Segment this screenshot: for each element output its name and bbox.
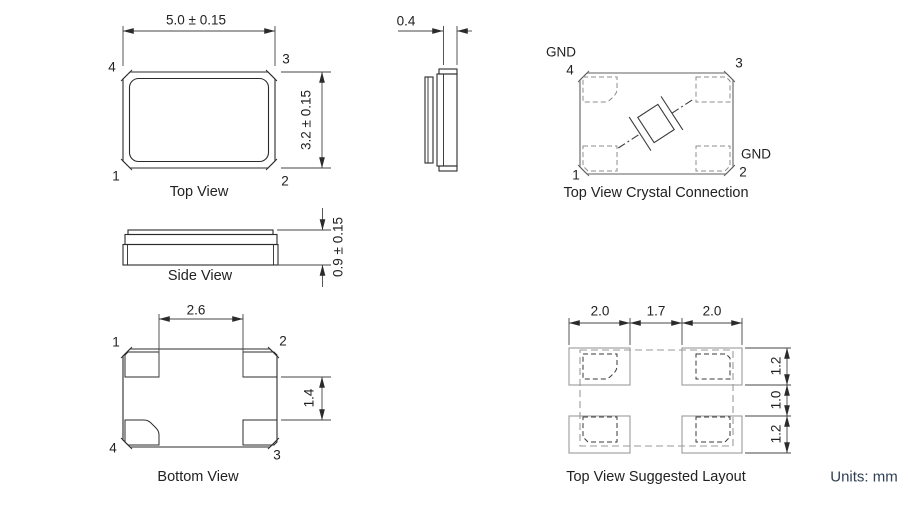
top-view-pin3-label: 3 [282,52,290,66]
side-view-height-dim-label: 0.9 ± 0.15 [331,217,345,277]
drawing-canvas: 5.0 ± 0.15 3.2 ± 0.15 4 3 1 2 Top View 0… [0,0,908,528]
crystal-pin3-label: 3 [735,56,743,70]
crystal-pin2-label: 2 [739,165,747,179]
top-view-width-dim-label: 5.0 ± 0.15 [166,13,226,27]
bottom-view-pin3-label: 3 [273,448,281,462]
suggested-layout-drawing [569,318,791,453]
side-view-caption: Side View [168,269,232,284]
top-view-pin4-label: 4 [108,60,116,74]
crystal-connection-caption: Top View Crystal Connection [563,186,748,201]
crystal-gnd-right-label: GND [741,147,771,161]
bottom-view-pad-gap-dim-label: 1.4 [302,389,316,408]
top-view-pin2-label: 2 [281,174,289,188]
units-note: Units: mm [830,470,898,485]
top-view-caption: Top View [170,185,229,200]
layout-pad-height-bottom-dim-label: 1.2 [769,425,783,444]
bottom-view-pin2-label: 2 [279,334,287,348]
end-view-drawing [398,26,472,171]
layout-pad-gap-dim-label: 1.7 [647,304,666,318]
crystal-gnd-top-label: GND [546,45,576,59]
bottom-view-pin1-label: 1 [112,335,120,349]
crystal-pin1-label: 1 [572,168,580,182]
top-view-height-dim-label: 3.2 ± 0.15 [299,90,313,150]
bottom-view-pin4-label: 4 [109,441,117,455]
top-view-pin1-label: 1 [112,169,120,183]
suggested-layout-caption: Top View Suggested Layout [566,470,746,485]
layout-pad-width-right-dim-label: 2.0 [703,304,722,318]
crystal-connection-drawing [578,71,735,176]
bottom-view-pad-span-dim-label: 2.6 [187,303,206,317]
bottom-view-drawing [121,314,331,449]
crystal-pin4-label: 4 [566,63,574,77]
crystal-symbol [607,82,704,165]
layout-pad-height-top-dim-label: 1.2 [769,357,783,376]
layout-row-gap-dim-label: 1.0 [769,391,783,410]
layout-pad-width-left-dim-label: 2.0 [591,304,610,318]
end-view-lid-dim-label: 0.4 [397,14,416,28]
bottom-view-caption: Bottom View [157,470,238,485]
mechanical-drawing [0,0,908,528]
